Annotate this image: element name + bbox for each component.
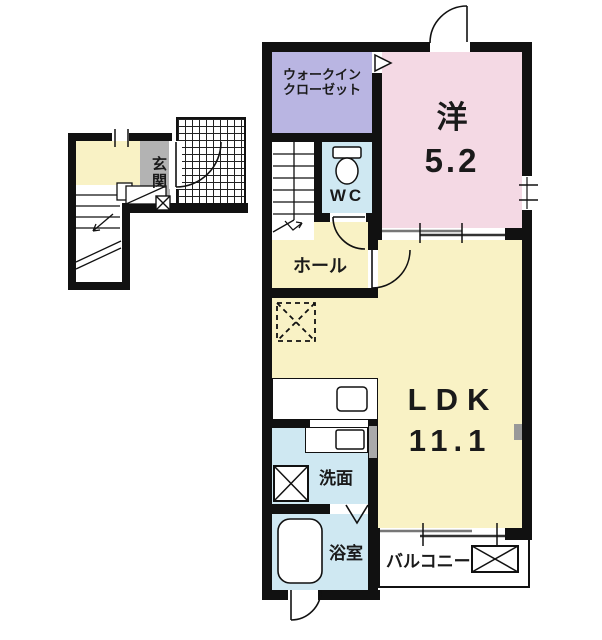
wall (272, 504, 330, 514)
wall (372, 52, 382, 240)
wall (505, 228, 532, 240)
floor-plan: ウォークイン クローゼット 洋 5.2 WC ホール LDK 11.1 洗面 浴… (0, 0, 602, 640)
balcony-label: バルコニー (386, 552, 471, 572)
wall (68, 133, 76, 290)
walk-in-closet-label: ウォークイン クローゼット (274, 68, 370, 98)
ldk-label: LDK (378, 382, 522, 418)
room-western (382, 52, 522, 228)
window-opening (112, 133, 129, 141)
entry-door-arc-icon (430, 6, 467, 43)
wall (262, 590, 380, 600)
stair-newel-icon (117, 183, 132, 200)
wall (68, 282, 130, 290)
stairs-1f-icon (76, 195, 121, 269)
entrance-porch-tiles (176, 117, 246, 206)
walk-in-closet-label-line2: クローゼット (274, 83, 370, 98)
wall (272, 133, 372, 142)
wall (522, 210, 532, 540)
wall (314, 142, 322, 222)
stairs-2f-icon (273, 142, 314, 232)
ldk-size: 11.1 (378, 423, 522, 459)
hall-label: ホール (270, 256, 370, 277)
wall (262, 42, 272, 600)
washroom-label: 洗面 (298, 469, 374, 489)
washroom-sliding-opening (369, 426, 377, 458)
kitchen-counter (272, 378, 378, 420)
entrance-label: 玄関 (143, 146, 167, 200)
door-opening (169, 141, 182, 189)
western-room-size: 5.2 (382, 142, 522, 180)
closet-opening (372, 52, 382, 73)
washstand-counter (305, 427, 368, 453)
western-room-label: 洋 (382, 100, 522, 136)
wc-label: WC (320, 186, 374, 206)
sliding-window-opening (380, 528, 505, 540)
wall (262, 420, 310, 428)
room-hall-upper (314, 222, 368, 240)
door-opening (330, 213, 366, 222)
wall (122, 203, 248, 213)
wall (368, 228, 382, 240)
door-opening (430, 42, 470, 52)
walk-in-closet-label-line1: ウォークイン (274, 68, 370, 83)
wall (122, 203, 130, 290)
sliding-door-opening (382, 228, 505, 240)
wall (262, 42, 430, 52)
door-opening (288, 590, 318, 600)
wall (262, 288, 378, 298)
room-entrance-yellow (76, 141, 140, 185)
bathroom-label: 浴室 (308, 544, 384, 564)
wall (522, 42, 532, 176)
